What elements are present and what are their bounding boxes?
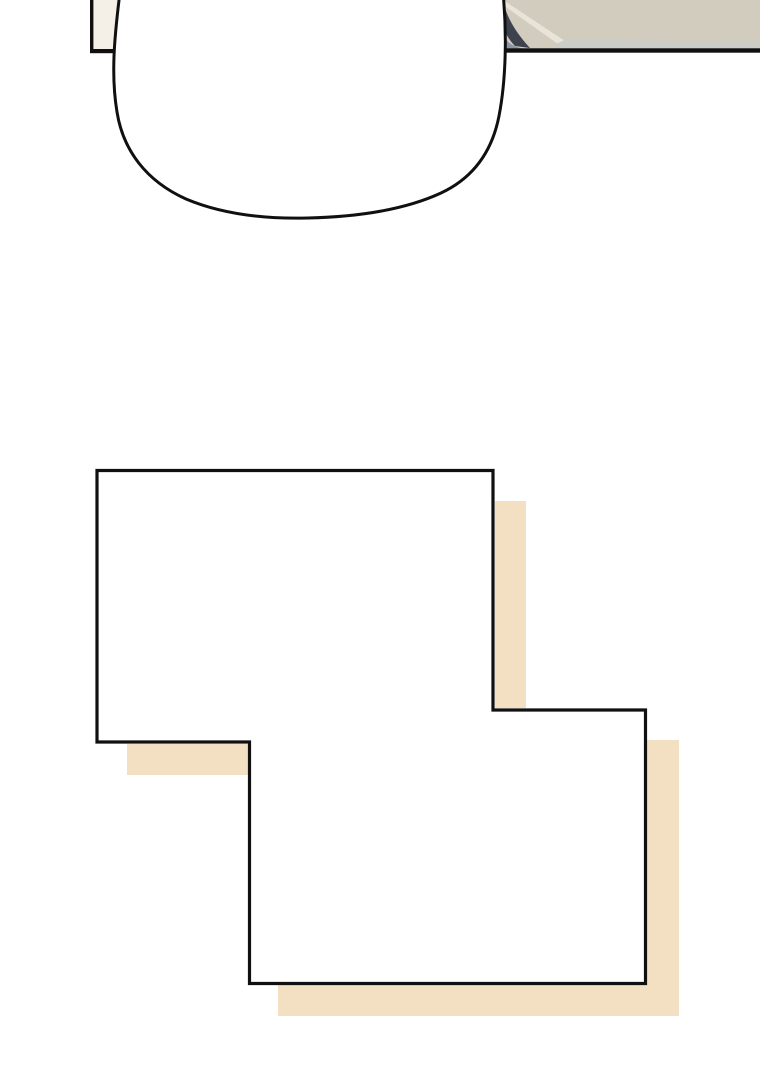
- panel-shadow-bottom-lower: [278, 985, 679, 1016]
- comic-artwork-layer: [0, 0, 760, 1080]
- webtoon-page: [0, 0, 760, 1080]
- panel-border-left: [90, 0, 93, 53]
- speech-bubble: [114, 0, 506, 218]
- panel-shadow-right-upper: [495, 501, 526, 708]
- panel-shadow-bottom-upper: [127, 744, 249, 775]
- panel-border-bottom-right: [489, 48, 760, 52]
- panel-shadow-right-lower: [647, 740, 679, 1016]
- top-panel-desk-artwork: [489, 0, 760, 53]
